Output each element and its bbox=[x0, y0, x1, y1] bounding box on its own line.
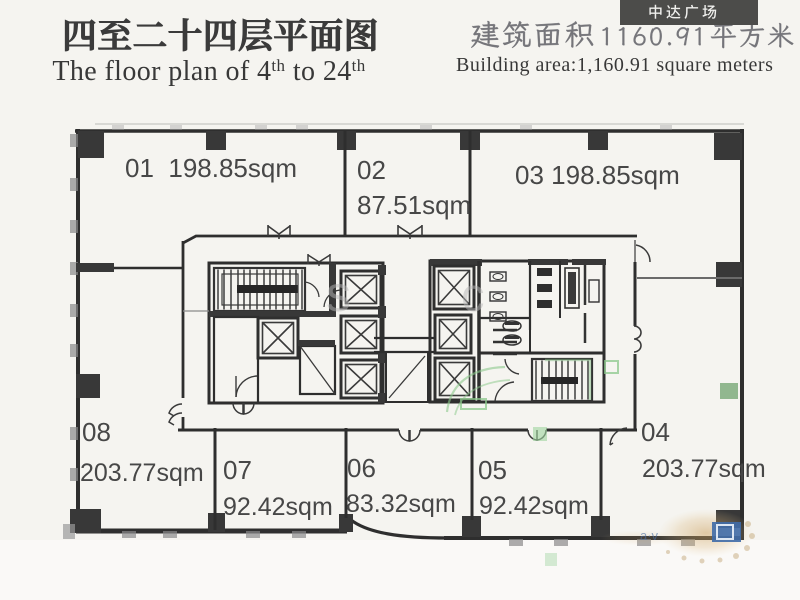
svg-text:a·v: a·v bbox=[640, 528, 659, 543]
svg-text:203.77sqm: 203.77sqm bbox=[80, 459, 204, 487]
svg-text:06: 06 bbox=[347, 453, 376, 483]
svg-text:c: c bbox=[461, 268, 485, 321]
svg-text:08: 08 bbox=[82, 417, 111, 447]
svg-text:92.42sqm: 92.42sqm bbox=[223, 493, 333, 521]
svg-text:Building area:1,160.91 square: Building area:1,160.91 square meters bbox=[456, 54, 773, 76]
svg-text:04: 04 bbox=[641, 417, 670, 447]
svg-text:02: 02 bbox=[357, 155, 386, 185]
svg-text:203.77sqm: 203.77sqm bbox=[642, 455, 766, 483]
svg-text:The floor plan of 4th to 24th: The floor plan of 4th to 24th bbox=[52, 56, 365, 87]
svg-text:92.42sqm: 92.42sqm bbox=[479, 492, 589, 520]
svg-text:s: s bbox=[326, 266, 351, 322]
svg-text:05: 05 bbox=[478, 455, 507, 485]
svg-text:01 198.85sqm: 01 198.85sqm bbox=[125, 153, 297, 183]
svg-text:03 198.85sqm: 03 198.85sqm bbox=[515, 160, 680, 190]
svg-text:87.51sqm: 87.51sqm bbox=[357, 190, 471, 220]
svg-text:07: 07 bbox=[223, 455, 252, 485]
svg-text:83.32sqm: 83.32sqm bbox=[346, 490, 456, 518]
